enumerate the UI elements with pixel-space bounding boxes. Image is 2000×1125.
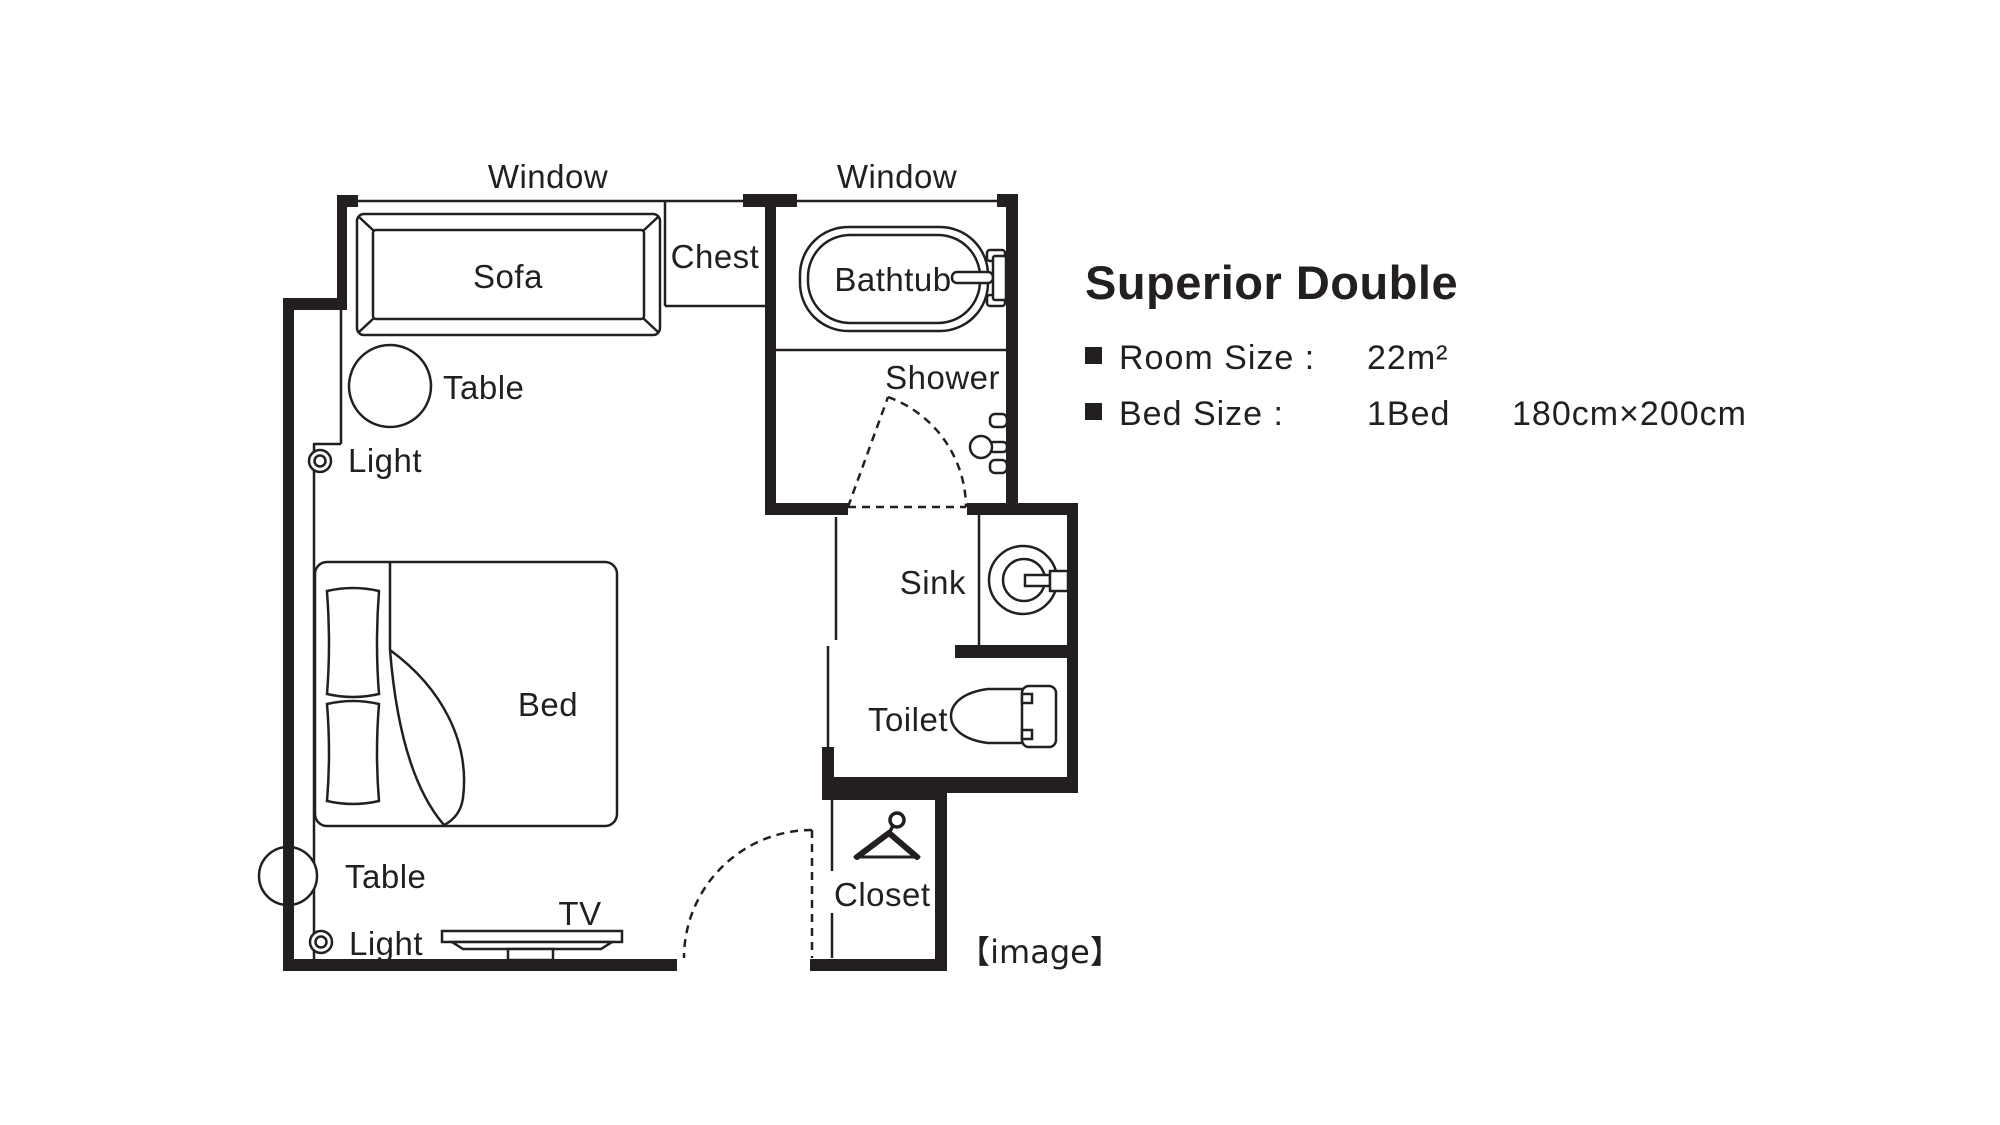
toilet-icon <box>951 686 1056 747</box>
light-lower-icon <box>310 931 332 953</box>
sink-label: Sink <box>900 564 966 601</box>
pillow-top <box>327 588 379 697</box>
sink-faucet-base <box>1050 571 1068 591</box>
tv-screen <box>442 931 622 942</box>
light-upper-inner <box>315 456 326 467</box>
table-upper-label: Table <box>443 369 524 406</box>
tv-label: TV <box>558 895 601 932</box>
wall-shower-bottom-right <box>967 503 1078 515</box>
bed-dimensions-value: 180cm×200cm <box>1512 395 1747 433</box>
bathtub-faucet-body <box>993 256 1006 300</box>
table-lower-label: Table <box>345 858 426 895</box>
floor-plan-canvas: Window Window Sofa Chest Bathtub Shower … <box>0 0 2000 1125</box>
sink-icon <box>989 546 1068 614</box>
tv-icon <box>442 931 622 960</box>
wall-left <box>283 298 294 971</box>
light-lower-label: Light <box>349 925 423 962</box>
bathtub-spout <box>952 272 993 283</box>
wall-toilet-left-block <box>822 747 834 800</box>
wall-bottom-left <box>283 959 677 971</box>
table-upper-circle <box>349 345 431 427</box>
shower-label: Shower <box>885 359 1000 396</box>
window-right-label: Window <box>837 158 957 195</box>
tv-stand <box>508 949 553 960</box>
wall-closet-top <box>834 785 947 800</box>
wall-closet-right <box>935 785 947 971</box>
wall-left-upper <box>337 195 347 307</box>
image-caption: 【image】 <box>958 933 1122 971</box>
shower-door <box>848 397 966 507</box>
toilet-notch-top <box>1022 694 1032 703</box>
wall-shower-bottom-left <box>765 503 848 515</box>
light-upper-icon <box>309 450 331 472</box>
shower-door-arc <box>888 397 966 507</box>
toilet-label: Toilet <box>868 701 948 738</box>
bullet-square-icon <box>1085 403 1102 420</box>
bed-size-label: Bed Size : <box>1119 395 1284 433</box>
toilet-bowl <box>951 689 1030 743</box>
bathtub-label: Bathtub <box>834 261 951 298</box>
closet-label: Closet <box>834 876 931 913</box>
light-upper-label: Light <box>348 442 422 479</box>
bullet-square-icon <box>1085 347 1102 364</box>
room-size-label: Room Size : <box>1119 339 1315 377</box>
sink-faucet-neck <box>1025 575 1050 586</box>
hanger-arms <box>857 833 917 857</box>
window-left-label: Window <box>488 158 608 195</box>
entry-door <box>684 830 812 958</box>
room-size-value: 22m² <box>1367 339 1448 377</box>
wall-bottom-right <box>810 959 947 971</box>
shower-knob-top <box>990 414 1007 427</box>
sofa-label: Sofa <box>473 258 543 295</box>
pillow-bottom <box>327 701 379 804</box>
shower-door-leaf <box>848 397 888 507</box>
shower-fixture-icon <box>970 414 1007 473</box>
light-lower-inner <box>316 937 327 948</box>
wall-main-bath-divider <box>765 203 776 515</box>
shower-knob-bottom <box>990 460 1007 473</box>
room-info: Superior Double Room Size : 22m² Bed Siz… <box>1085 256 1747 433</box>
floor-plan-page: Window Window Sofa Chest Bathtub Shower … <box>0 0 2000 1125</box>
toilet-notch-bottom <box>1022 730 1032 739</box>
bed-count-value: 1Bed <box>1367 395 1450 433</box>
wall-sink-partition <box>955 645 1078 658</box>
bed-label: Bed <box>518 686 578 723</box>
room-title: Superior Double <box>1085 256 1458 309</box>
hanger-icon <box>855 813 919 857</box>
shower-head <box>970 436 992 458</box>
entry-door-arc <box>684 830 812 958</box>
chest-label: Chest <box>671 238 760 275</box>
